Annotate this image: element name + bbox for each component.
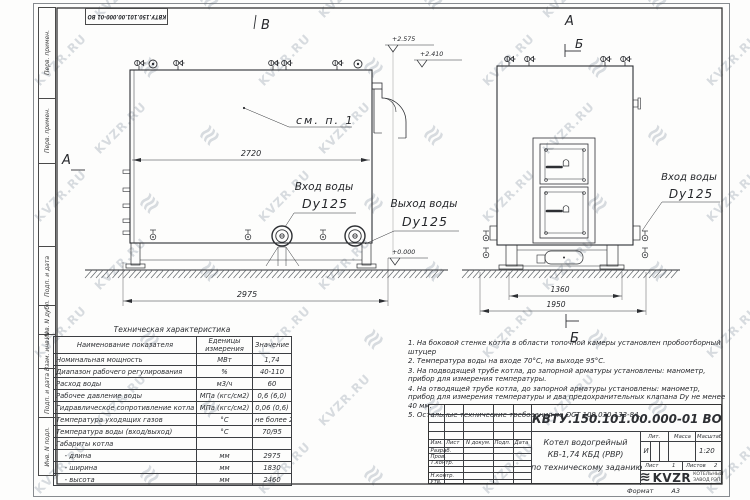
tech-table: Наименование показателя Еденицы измерени… — [53, 336, 292, 486]
view-mark-B-top: В — [261, 18, 270, 33]
dim-2720: 2720 — [241, 149, 261, 158]
tech-table-cell: мм — [197, 450, 253, 462]
tech-table-row: - ширинамм1830 — [54, 462, 292, 474]
tech-table-cell: - длина — [54, 450, 197, 462]
tb-col-ndokum: N докум. — [466, 440, 491, 446]
tech-table-cell: Диапазон рабочего регулирования — [54, 366, 197, 378]
product-title-line3: по техническому заданию — [531, 462, 640, 474]
product-title-line1: Котел водогрейный — [531, 437, 640, 449]
product-title-line2: КВ-1,74 КБД (РВР) — [531, 449, 640, 461]
inlet-label-front: Вход воды — [295, 181, 354, 193]
tech-table-cell: % — [197, 366, 253, 378]
tb-row-nkontr: Н.контр. — [431, 473, 455, 479]
tech-table-cell: м3/ч — [197, 378, 253, 390]
tech-table-cell: - высота — [54, 474, 197, 486]
tech-table-cell: не более 280 — [253, 414, 292, 426]
tb-col-data: Дата — [515, 440, 529, 446]
tech-characteristics: Техническая характеристика Наименование … — [53, 325, 291, 486]
tech-table-cell: °С — [197, 426, 253, 438]
format-strip: Формат А3 — [585, 487, 722, 495]
side-skid — [499, 245, 624, 269]
tech-table-row: - длинамм2975 — [54, 450, 292, 462]
elev-0000: +0.000 — [392, 249, 415, 256]
note-item: 1. На боковой стенке котла в области топ… — [408, 339, 726, 356]
format-label: Формат — [627, 487, 653, 495]
tech-table-header-value: Значение — [253, 337, 292, 354]
tech-table-row: Номинальная мощностьМВт1,74 — [54, 354, 292, 366]
tb-sheets-label: Листов — [686, 463, 706, 469]
elev-2575: +2.575 — [392, 36, 415, 43]
frame-field-podp-data-1: Подп. и дата — [38, 246, 56, 306]
tb-row-tkontr: Т.контр. — [431, 460, 454, 466]
tech-table-row: Гидравлическое сопротивление котлаМПа (к… — [54, 402, 292, 414]
frame-field-perv-primen-1: Перв. примен. — [38, 7, 56, 99]
tech-table-cell: 60 — [253, 378, 292, 390]
tech-table-cell — [197, 438, 253, 450]
tech-table-cell: мм — [197, 462, 253, 474]
product-title-cell: Котел водогрейный КВ-1,74 КБД (РВР) по т… — [531, 432, 641, 485]
format-value: А3 — [671, 487, 680, 495]
inlet-label-side: Вход воды — [661, 172, 717, 183]
side-dimensions: 1360 1950 — [480, 272, 646, 315]
frame-field-perv-primen-2: Перв. примен. — [38, 98, 56, 164]
tb-scale-label: Масштаб — [697, 434, 722, 440]
tb-row-razrab: Разраб. — [431, 448, 452, 454]
dim-2975: 2975 — [237, 290, 257, 299]
view-mark-A-side: А — [564, 14, 574, 29]
tech-table-row: Температура уходящих газов°Сне более 280 — [54, 414, 292, 426]
tech-table-cell: Температура воды (вход/выход) — [54, 426, 197, 438]
outlet-label-front: Выход воды — [391, 198, 458, 210]
tb-sheet-value: 1 — [672, 463, 675, 469]
tech-table-cell: Габариты котла — [54, 438, 197, 450]
front-annotations: см. п. 1 А В — [61, 15, 355, 170]
note-item: 3. На подводящей трубе котла, до запорно… — [408, 367, 726, 384]
tech-table-title: Техническая характеристика — [53, 325, 291, 334]
rotated-doc-number-text: КВТУ.150.101.00.000-01 ВО — [87, 13, 166, 20]
tech-table-row: Расход водым3/ч60 — [54, 378, 292, 390]
tech-table-row: Рабочее давление водыМПа (кгс/см2)0,6 (6… — [54, 390, 292, 402]
tech-table-cell: 2975 — [253, 450, 292, 462]
view-mark-A-front: А — [61, 153, 71, 168]
tech-table-cell: МПа (кгс/см2) — [197, 390, 253, 402]
tech-table-cell: 1,74 — [253, 354, 292, 366]
tech-table-cell: Температура уходящих газов — [54, 414, 197, 426]
front-skid — [126, 243, 376, 268]
outlet-size-front: Dy125 — [402, 214, 448, 229]
tech-table-row: - высотамм2460 — [54, 474, 292, 486]
callout-see-p1: см. п. 1 — [296, 114, 355, 127]
tb-sheets-value: 2 — [714, 463, 717, 469]
inlet-size-side: Dy125 — [669, 187, 713, 201]
tb-lit-label: Лит. — [648, 434, 660, 440]
tech-table-cell — [253, 438, 292, 450]
tech-table-cell: 40-110 — [253, 366, 292, 378]
doc-number-cell: КВТУ.150.101.00.000-01 ВО — [531, 405, 722, 432]
title-block: Изм. Лист N докум. Подп. Дата Разраб. Пр… — [428, 404, 722, 484]
doc-number: КВТУ.150.101.00.000-01 ВО — [532, 411, 722, 426]
tech-table-cell: 0,06 (0,6) — [253, 402, 292, 414]
tech-table-cell: 1830 — [253, 462, 292, 474]
tech-table-cell: °С — [197, 414, 253, 426]
tech-table-cell: МВт — [197, 354, 253, 366]
note-item: 2. Температура воды на входе 70°С, на вы… — [408, 357, 726, 366]
frame-field-empty — [38, 163, 56, 247]
drawing-sheet: ≋KVZR.RU≋KVZR.RU≋KVZR.RU≋KVZR.RU≋KVZR.RU… — [0, 0, 750, 500]
front-dimensions: 2720 2975 — [123, 149, 388, 306]
tb-scale-value: 1:20 — [699, 447, 715, 455]
logo-sub-line2: ЗАВОД РЭП — [693, 478, 723, 484]
tech-table-row: Габариты котла — [54, 438, 292, 450]
ground-hatch-side — [462, 270, 678, 278]
tech-table-cell: Номинальная мощность — [54, 354, 197, 366]
tb-row-utv: Утв. — [431, 479, 442, 485]
tech-table-cell: Рабочее давление воды — [54, 390, 197, 402]
tech-table-cell: 0,6 (6,0) — [253, 390, 292, 402]
tb-lit-value: И — [644, 447, 649, 455]
inlet-size-front: Dy125 — [302, 196, 348, 211]
furnace-doors — [533, 138, 595, 243]
tech-table-header-units: Еденицы измерения — [197, 337, 253, 354]
tb-row-prov: Пров. — [431, 454, 446, 460]
tech-table-row: Температура воды (вход/выход)°С70/95 — [54, 426, 292, 438]
tech-table-cell: Гидравлическое сопротивление котла — [54, 402, 197, 414]
elev-2410: +2.410 — [420, 51, 443, 58]
logo-kvzr-text: KVZR — [653, 471, 692, 485]
tech-table-cell: 2460 — [253, 474, 292, 486]
tech-table-cell: - ширина — [54, 462, 197, 474]
tech-table-header-name: Наименование показателя — [54, 337, 197, 354]
front-view — [85, 60, 448, 270]
rotated-doc-number-stamp: КВТУ.150.101.00.000-01 ВО — [85, 8, 168, 25]
tech-table-cell: мм — [197, 474, 253, 486]
tb-mass-label: Масса — [674, 434, 691, 440]
tech-table-cell: 70/95 — [253, 426, 292, 438]
tb-col-izm: Изм. — [431, 440, 443, 446]
tb-col-podp: Подп. — [495, 440, 511, 446]
dim-1360: 1360 — [550, 285, 569, 294]
dim-1950: 1950 — [546, 300, 565, 309]
company-logo: ≋ KVZR КОТЕЛЬНЫЙ ЗАВОД РЭП — [641, 470, 722, 485]
tb-col-list: Лист — [446, 440, 459, 446]
logo-waves-icon: ≋ — [640, 471, 651, 484]
section-mark-B-top: Б — [575, 37, 583, 51]
tb-sheet-label: Лист — [645, 463, 658, 469]
side-view — [462, 56, 680, 270]
gas-outlet — [372, 83, 406, 138]
tech-table-row: Диапазон рабочего регулирования%40-110 — [54, 366, 292, 378]
tech-table-cell: Расход воды — [54, 378, 197, 390]
tech-table-cell: МПа (кгс/см2) — [197, 402, 253, 414]
ground-hatch-front — [85, 270, 444, 278]
elevation-marks: +2.575 +2.410 +0.000 — [385, 36, 462, 265]
